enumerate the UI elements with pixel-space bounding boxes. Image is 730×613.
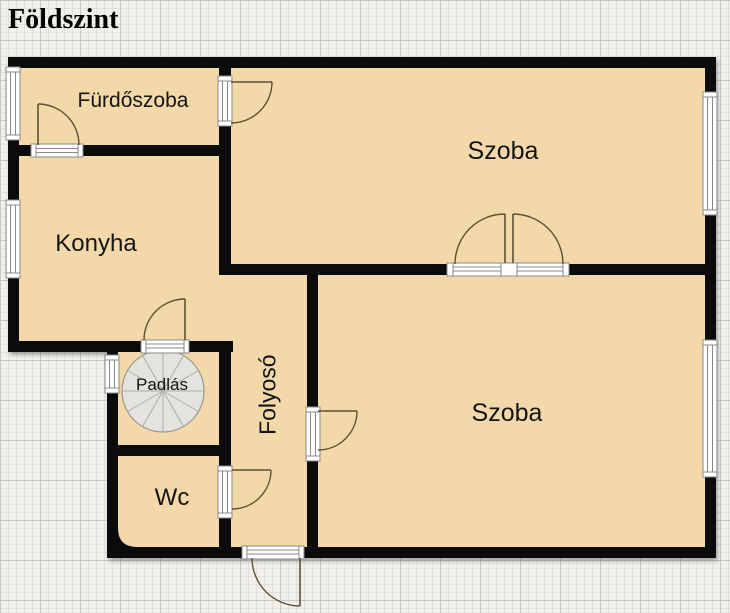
door-frame-furdoszoba-szoba xyxy=(218,76,232,126)
building-outline xyxy=(8,57,716,558)
wall-bottom xyxy=(107,547,716,558)
room-label-padlas: Padlás xyxy=(112,376,212,395)
room-label-szoba-top: Szoba xyxy=(423,138,583,166)
window-furdoszoba xyxy=(6,67,20,140)
room-label-wc: Wc xyxy=(122,485,222,511)
room-label-folyoso: Folyosó xyxy=(255,340,280,450)
window-szoba-bottom xyxy=(703,340,717,477)
wall-padlas-wc xyxy=(107,445,231,456)
floor-plan-page: Földszint xyxy=(0,0,730,613)
wall-konyha-bottom xyxy=(8,341,233,352)
entrance-door-sill xyxy=(242,546,304,559)
room-label-konyha: Konyha xyxy=(16,231,176,257)
door-frame-furdoszoba-konyha xyxy=(31,144,83,157)
double-door-frame-szoba xyxy=(447,263,569,276)
room-label-szoba-bottom: Szoba xyxy=(427,400,587,428)
room-label-furdoszoba: Fürdőszoba xyxy=(53,89,213,112)
wall-top xyxy=(8,57,716,68)
door-frame-konyha-padlas xyxy=(141,340,189,353)
entrance-door-swing xyxy=(252,558,300,606)
window-szoba-top xyxy=(703,92,717,215)
door-frame-folyoso-szoba xyxy=(306,407,320,461)
